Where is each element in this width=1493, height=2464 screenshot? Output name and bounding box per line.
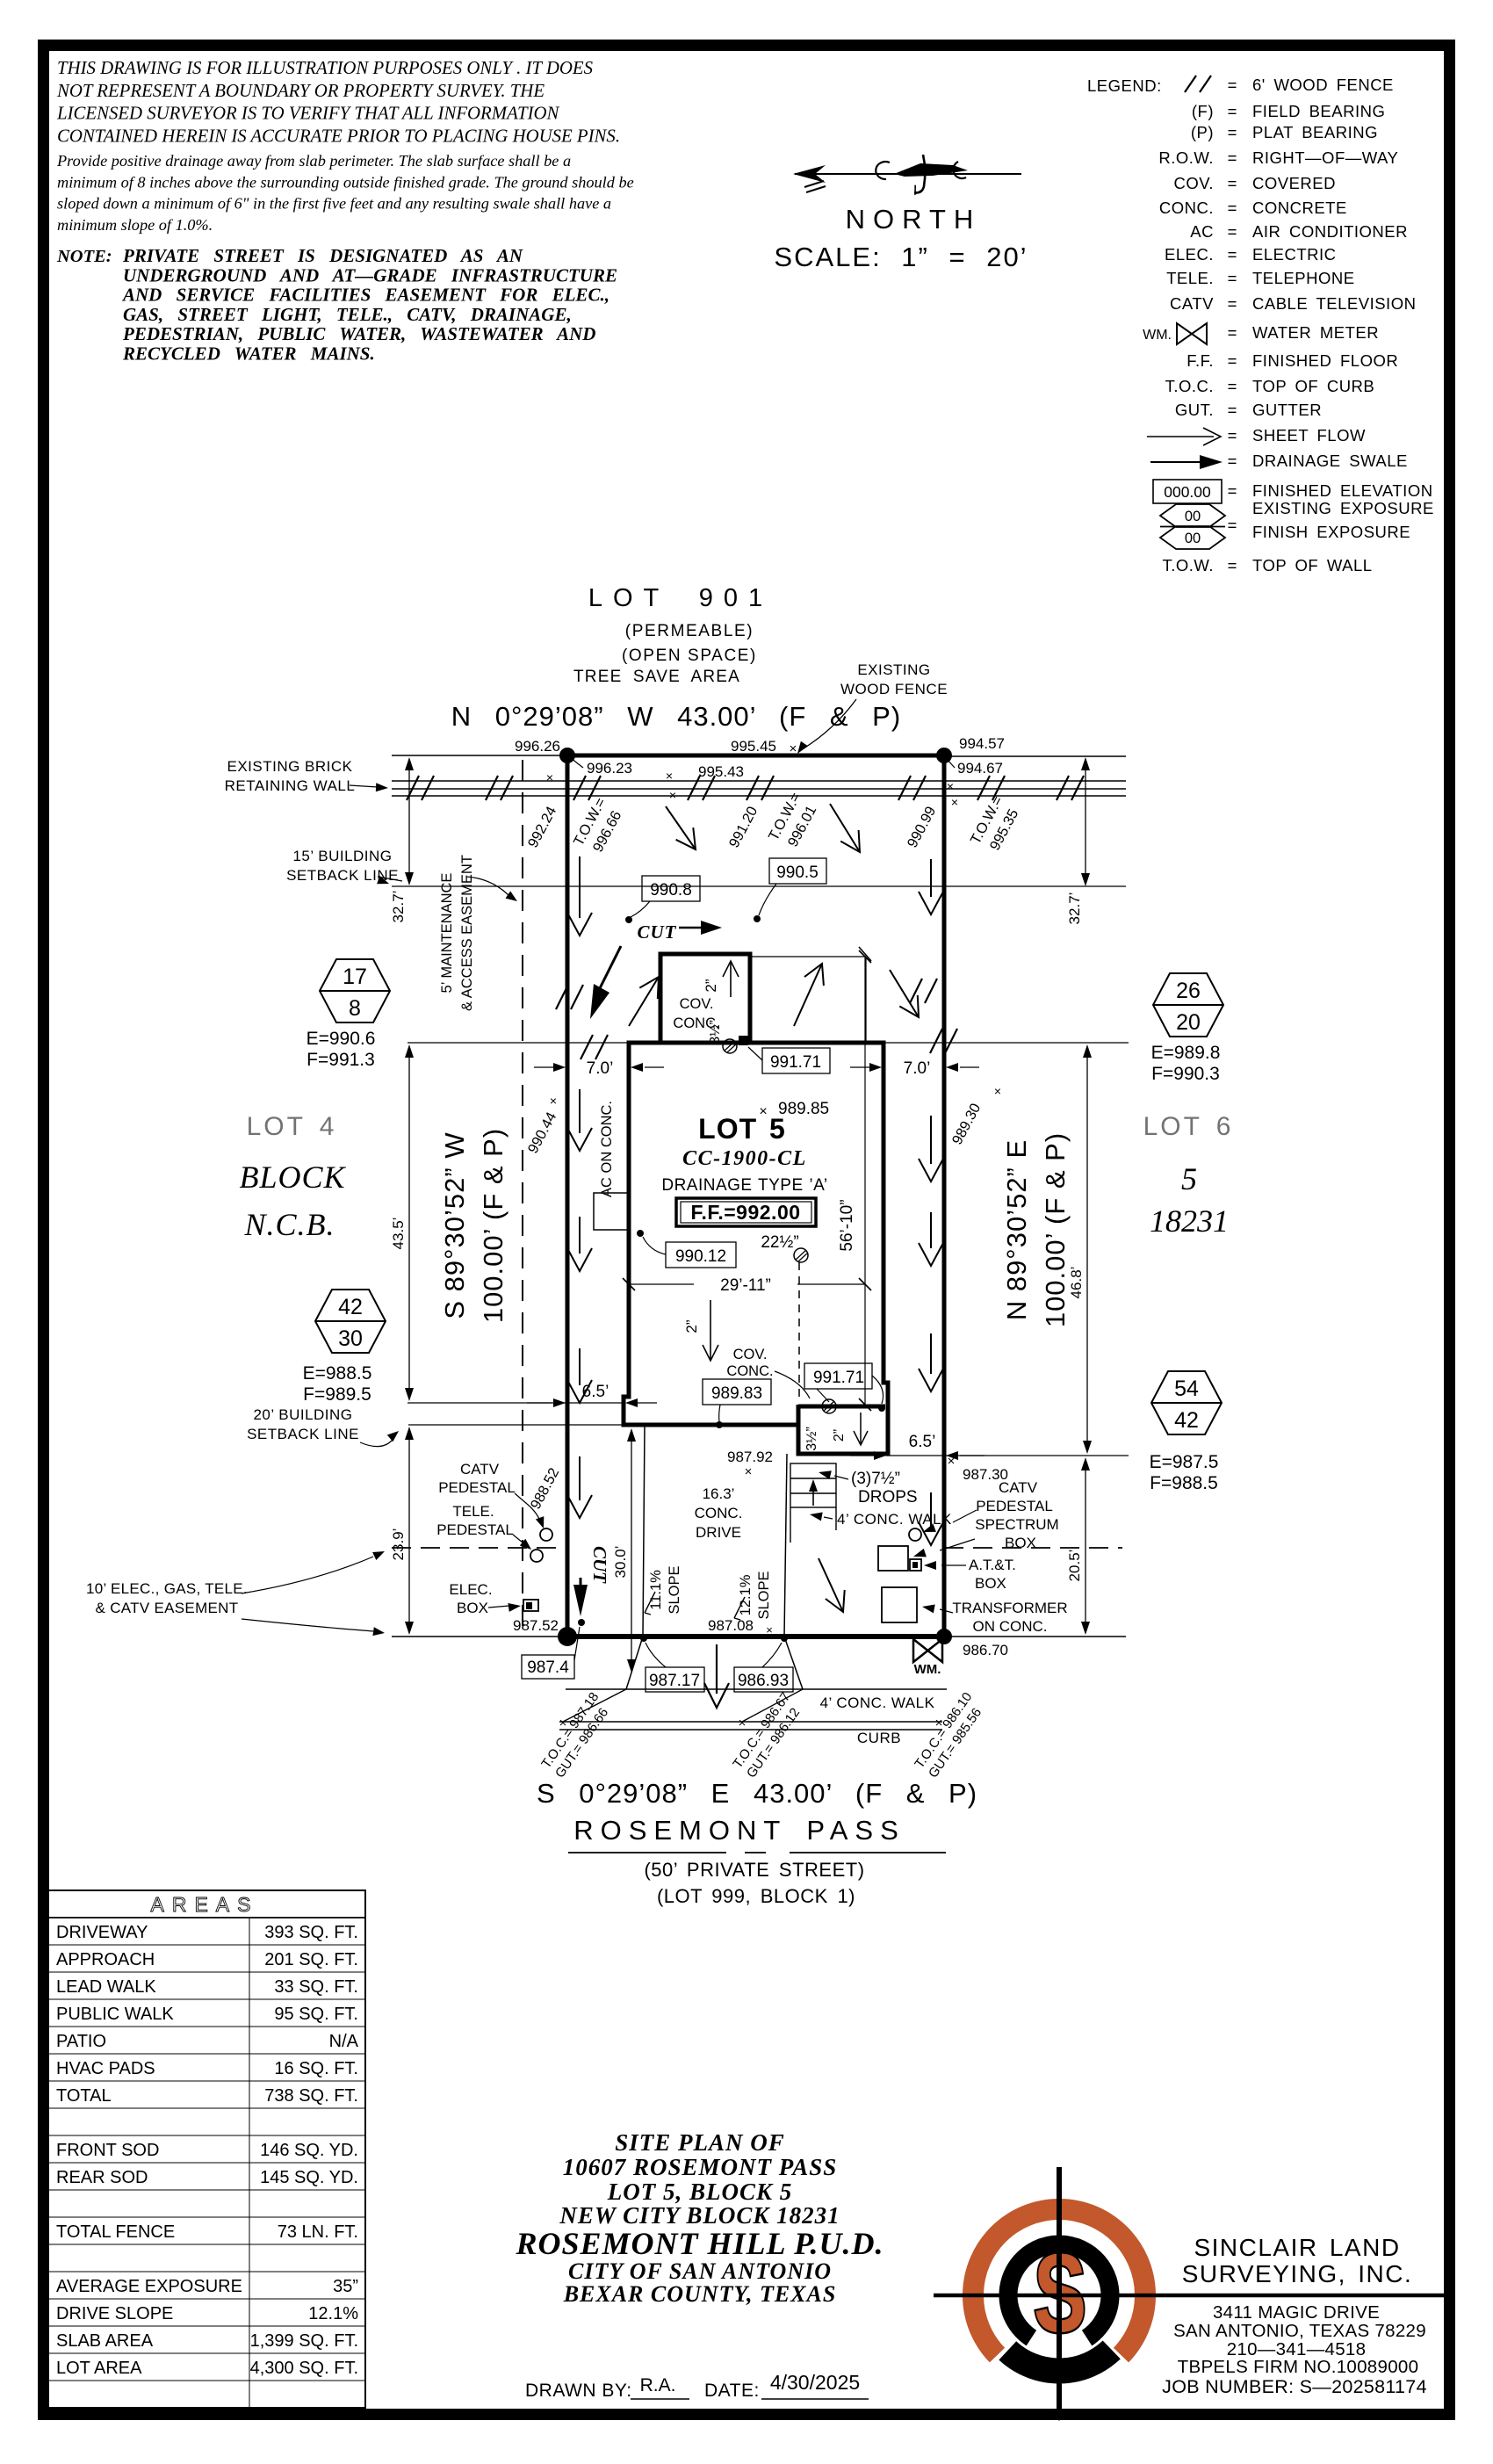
svg-text:E=990.6: E=990.6: [307, 1029, 376, 1049]
svg-text:×: ×: [766, 1623, 773, 1637]
svg-text:DATE:: DATE:: [704, 2381, 760, 2401]
svg-text:10’ ELEC., GAS, TELE.: 10’ ELEC., GAS, TELE.: [86, 1580, 248, 1597]
svg-text:CONCRETE: CONCRETE: [1252, 199, 1347, 217]
svg-text:18231: 18231: [1150, 1203, 1229, 1239]
svg-text:F=988.5: F=988.5: [1150, 1473, 1218, 1493]
svg-text:LOT 6: LOT 6: [1143, 1112, 1234, 1141]
svg-text:00: 00: [1185, 531, 1201, 546]
svg-text:4’ CONC. WALK: 4’ CONC. WALK: [820, 1694, 935, 1711]
svg-text:×: ×: [994, 1084, 1001, 1098]
svg-text:TRANSFORMER: TRANSFORMER: [952, 1600, 1067, 1616]
svg-text:PEDESTRIAN, PUBLIC WATER, W: PEDESTRIAN, PUBLIC WATER, WASTEWATER AND: [122, 323, 595, 344]
svg-text:TELEPHONE: TELEPHONE: [1252, 269, 1355, 287]
svg-text:990.5: 990.5: [776, 863, 819, 882]
svg-text:R.A.: R.A.: [640, 2375, 676, 2395]
svg-text:LEAD WALK: LEAD WALK: [56, 1977, 156, 1997]
svg-text:×: ×: [550, 1094, 557, 1108]
svg-text:SITE PLAN OF: SITE PLAN OF: [615, 2129, 785, 2156]
svg-text:23.9’: 23.9’: [390, 1528, 407, 1561]
svg-text:11.1%: 11.1%: [648, 1570, 664, 1610]
svg-text:DRIVE SLOPE: DRIVE SLOPE: [56, 2304, 173, 2323]
svg-text:ON CONC.: ON CONC.: [973, 1618, 1048, 1635]
svg-text:22½”: 22½”: [761, 1233, 798, 1252]
svg-text:FINISH EXPOSURE: FINISH EXPOSURE: [1252, 523, 1410, 541]
svg-text:NOT REPRESENT A BOUNDARY OR PR: NOT REPRESENT A BOUNDARY OR PROPERTY SUR…: [56, 81, 545, 101]
svg-text:994.57: 994.57: [959, 735, 1005, 752]
svg-text:×: ×: [745, 1464, 753, 1479]
svg-text:=: =: [1228, 222, 1237, 241]
svg-text:CUT: CUT: [638, 921, 677, 943]
svg-text:987.17: 987.17: [649, 1672, 700, 1690]
svg-text:BEXAR COUNTY, TEXAS: BEXAR COUNTY, TEXAS: [563, 2281, 837, 2307]
svg-text:×: ×: [669, 788, 676, 802]
svg-text:WM.: WM.: [1143, 328, 1172, 343]
svg-text:LOT AREA: LOT AREA: [56, 2359, 142, 2378]
svg-text:CATV: CATV: [999, 1479, 1038, 1496]
svg-text:=: =: [1228, 148, 1237, 167]
svg-text:00: 00: [1185, 509, 1201, 524]
svg-text:TELE.: TELE.: [452, 1503, 494, 1520]
svg-text:DRAWN BY:: DRAWN BY:: [525, 2381, 632, 2401]
svg-text:SLOPE: SLOPE: [667, 1565, 682, 1614]
svg-text:ELEC.: ELEC.: [449, 1581, 492, 1598]
svg-text:NEW CITY BLOCK 18231: NEW CITY BLOCK 18231: [559, 2202, 840, 2229]
svg-text:32.7’: 32.7’: [390, 891, 407, 923]
svg-text:LICENSED SURVEYOR IS TO VERIFY: LICENSED SURVEYOR IS TO VERIFY THAT ALL …: [56, 104, 560, 124]
svg-text:COVERED: COVERED: [1252, 174, 1336, 192]
svg-text:=: =: [1228, 199, 1237, 217]
svg-text:UNDERGROUND AND AT—GRADE IN: UNDERGROUND AND AT—GRADE INFRASTRUCTURE: [123, 264, 617, 285]
svg-text:×: ×: [666, 769, 673, 783]
svg-text:987.08: 987.08: [708, 1617, 754, 1634]
svg-text:20’ BUILDING: 20’ BUILDING: [253, 1406, 352, 1423]
svg-text:393 SQ. FT.: 393 SQ. FT.: [264, 1923, 358, 1942]
svg-text:LOT 901: LOT 901: [588, 584, 773, 612]
svg-text:987.92: 987.92: [727, 1449, 773, 1465]
svg-text:TOTAL FENCE: TOTAL FENCE: [56, 2222, 175, 2242]
svg-text:×: ×: [759, 1104, 767, 1119]
svg-text:PUBLIC WALK: PUBLIC WALK: [56, 2005, 174, 2024]
svg-text:CATV: CATV: [460, 1461, 500, 1478]
svg-text:LOT 5, BLOCK 5: LOT 5, BLOCK 5: [607, 2179, 793, 2205]
svg-text:30: 30: [338, 1326, 363, 1351]
svg-text:SPECTRUM: SPECTRUM: [975, 1516, 1058, 1533]
svg-text:990.12: 990.12: [675, 1247, 726, 1266]
svg-text:=: =: [1228, 174, 1237, 192]
svg-text:BOX: BOX: [457, 1600, 488, 1616]
svg-text:DROPS: DROPS: [858, 1488, 918, 1507]
svg-text:F=989.5: F=989.5: [303, 1384, 371, 1405]
svg-text:GUT.: GUT.: [1175, 401, 1214, 419]
svg-text:LEGEND:: LEGEND:: [1087, 76, 1162, 95]
svg-text:LOT 5: LOT 5: [698, 1113, 786, 1145]
svg-text:995.45: 995.45: [731, 738, 776, 755]
svg-text:73 LN. FT.: 73 LN. FT.: [278, 2222, 358, 2242]
svg-text:43.5’: 43.5’: [390, 1218, 407, 1250]
svg-text:TELE.: TELE.: [1166, 269, 1214, 287]
svg-text:E=987.5: E=987.5: [1150, 1452, 1219, 1472]
svg-text:(50’ PRIVATE STREET): (50’ PRIVATE STREET): [644, 1859, 864, 1881]
svg-text:54: 54: [1174, 1377, 1199, 1401]
svg-text:2”: 2”: [683, 1319, 700, 1333]
svg-text:=: =: [1228, 269, 1237, 287]
svg-text:PEDESTAL: PEDESTAL: [438, 1479, 516, 1496]
svg-text:EXISTING EXPOSURE: EXISTING EXPOSURE: [1252, 499, 1434, 517]
svg-text:CATV: CATV: [1170, 294, 1214, 313]
svg-text:minimum slope of 1.0%.: minimum slope of 1.0%.: [57, 216, 213, 234]
svg-text:AC ON CONC.: AC ON CONC.: [599, 1101, 615, 1197]
svg-text:20.5’: 20.5’: [1066, 1550, 1083, 1582]
svg-text:CC-1900-CL: CC-1900-CL: [682, 1147, 807, 1170]
svg-text:PLAT BEARING: PLAT BEARING: [1252, 123, 1378, 141]
svg-text:F=990.3: F=990.3: [1151, 1064, 1220, 1084]
svg-text:CABLE TELEVISION: CABLE TELEVISION: [1252, 294, 1416, 313]
svg-text:×: ×: [546, 770, 553, 784]
svg-text:ELECTRIC: ELECTRIC: [1252, 245, 1337, 264]
svg-text:35”: 35”: [333, 2277, 358, 2296]
svg-text:991.71: 991.71: [770, 1053, 821, 1072]
svg-text:GUTTER: GUTTER: [1252, 401, 1322, 419]
svg-text:100.00’ (F & P): 100.00’ (F & P): [1040, 1132, 1071, 1327]
svg-text:SLOPE: SLOPE: [756, 1571, 772, 1619]
svg-text:FIELD BEARING: FIELD BEARING: [1252, 102, 1385, 120]
svg-text:CURB: CURB: [857, 1730, 901, 1746]
svg-text:10607 ROSEMONT PASS: 10607 ROSEMONT PASS: [563, 2154, 838, 2180]
svg-text:2”: 2”: [832, 1429, 847, 1442]
svg-text:N.C.B.: N.C.B.: [243, 1207, 335, 1242]
svg-text:=: =: [1228, 102, 1237, 120]
svg-text:42: 42: [338, 1295, 363, 1319]
svg-text:7.0’: 7.0’: [587, 1059, 614, 1078]
svg-text:TOP OF CURB: TOP OF CURB: [1252, 377, 1374, 395]
svg-text:=: =: [1228, 516, 1237, 534]
svg-text:=: =: [1228, 452, 1237, 470]
svg-text:6.5’: 6.5’: [909, 1433, 936, 1451]
svg-text:RETAINING WALL: RETAINING WALL: [225, 777, 356, 794]
svg-text:12.1%: 12.1%: [738, 1574, 754, 1615]
svg-text:PATIO: PATIO: [56, 2032, 106, 2051]
svg-text:JOB NUMBER: S—202581174: JOB NUMBER: S—202581174: [1162, 2376, 1427, 2397]
svg-text:42: 42: [1174, 1408, 1199, 1433]
svg-text:=: =: [1228, 481, 1237, 500]
svg-text:EXISTING: EXISTING: [857, 661, 930, 678]
svg-text:=: =: [1228, 351, 1237, 370]
svg-text:3½”: 3½”: [804, 1427, 819, 1451]
svg-text:T.O.C.: T.O.C.: [1165, 377, 1214, 395]
svg-text:95 SQ. FT.: 95 SQ. FT.: [274, 2005, 358, 2024]
svg-text:33 SQ. FT.: 33 SQ. FT.: [274, 1977, 358, 1997]
svg-text:30.0’: 30.0’: [612, 1546, 629, 1579]
svg-text:=: =: [1228, 323, 1237, 342]
svg-text:5’ MAINTENANCE: 5’ MAINTENANCE: [439, 873, 455, 994]
svg-text:AIR CONDITIONER: AIR CONDITIONER: [1252, 222, 1408, 241]
svg-text:HVAC PADS: HVAC PADS: [56, 2059, 155, 2078]
svg-text:COV.: COV.: [1173, 174, 1214, 192]
svg-text:(3)7½”: (3)7½”: [851, 1470, 900, 1488]
svg-text:5: 5: [1181, 1161, 1197, 1196]
svg-text:145 SQ. YD.: 145 SQ. YD.: [260, 2168, 358, 2187]
svg-text:×: ×: [739, 1716, 746, 1731]
svg-text:F=991.3: F=991.3: [307, 1050, 375, 1070]
svg-text:AREAS: AREAS: [151, 1893, 259, 1916]
svg-text:991.71: 991.71: [813, 1369, 864, 1387]
svg-text:FRONT SOD: FRONT SOD: [56, 2141, 159, 2160]
svg-text:8: 8: [349, 996, 361, 1021]
svg-text:=: =: [1228, 76, 1237, 94]
svg-text:201 SQ. FT.: 201 SQ. FT.: [264, 1950, 358, 1969]
svg-text:000.00: 000.00: [1164, 483, 1211, 501]
svg-text:WATER METER: WATER METER: [1252, 323, 1379, 342]
svg-text:BOX: BOX: [975, 1575, 1006, 1592]
svg-text:PRIVATE STREET IS DESIGNATE: PRIVATE STREET IS DESIGNATED AS AN: [122, 245, 523, 266]
svg-text:989.83: 989.83: [711, 1384, 762, 1403]
svg-text:15’ BUILDING: 15’ BUILDING: [292, 848, 392, 864]
svg-text:Provide positive drainage away: Provide positive drainage away from slab…: [56, 152, 571, 170]
svg-text:CUT: CUT: [589, 1546, 610, 1584]
svg-text:PEDESTAL: PEDESTAL: [976, 1498, 1053, 1514]
svg-text:7.0’: 7.0’: [904, 1059, 931, 1078]
svg-text:PEDESTAL: PEDESTAL: [436, 1521, 514, 1538]
svg-text:56’-10”: 56’-10”: [838, 1199, 856, 1251]
svg-text:(P): (P): [1191, 123, 1214, 141]
svg-text:CITY OF SAN ANTONIO: CITY OF SAN ANTONIO: [568, 2258, 832, 2284]
svg-text:=: =: [1228, 123, 1237, 141]
svg-text:F.F.: F.F.: [1186, 351, 1214, 370]
svg-text:TBPELS FIRM NO.10089000: TBPELS FIRM NO.10089000: [1178, 2357, 1419, 2377]
svg-text:=: =: [1228, 401, 1237, 419]
svg-text:=: =: [1228, 556, 1237, 574]
svg-text:SAN ANTONIO, TEXAS 78229: SAN ANTONIO, TEXAS 78229: [1173, 2321, 1426, 2341]
svg-text:RIGHT—OF—WAY: RIGHT—OF—WAY: [1252, 148, 1398, 167]
svg-text:6' WOOD FENCE: 6' WOOD FENCE: [1252, 76, 1394, 94]
svg-text:N 89°30’52” E: N 89°30’52” E: [1001, 1139, 1032, 1320]
svg-text:(OPEN SPACE): (OPEN SPACE): [622, 647, 757, 665]
svg-text:29’-11”: 29’-11”: [720, 1276, 771, 1295]
svg-text:=: =: [1228, 294, 1237, 313]
svg-text:DRAINAGE TYPE ’A’: DRAINAGE TYPE ’A’: [661, 1176, 827, 1195]
svg-text:minimum of 8 inches above the: minimum of 8 inches above the surroundin…: [57, 173, 634, 191]
svg-text:WM.: WM.: [914, 1662, 941, 1677]
svg-text:AVERAGE EXPOSURE: AVERAGE EXPOSURE: [56, 2277, 242, 2296]
svg-text:F.F.=992.00: F.F.=992.00: [690, 1201, 800, 1224]
svg-text:TOTAL: TOTAL: [56, 2086, 112, 2106]
svg-text:987.4: 987.4: [527, 1658, 569, 1677]
svg-text:BLOCK: BLOCK: [239, 1160, 346, 1195]
svg-text:COV.: COV.: [733, 1347, 768, 1362]
svg-text:WOOD FENCE: WOOD FENCE: [840, 681, 948, 697]
svg-text:990.8: 990.8: [650, 881, 692, 900]
svg-text:BOX: BOX: [1005, 1535, 1036, 1551]
svg-text:CONC.: CONC.: [726, 1363, 773, 1379]
svg-text:ELEC.: ELEC.: [1165, 245, 1214, 264]
svg-text:sloped down a minimum of 6" in: sloped down a minimum of 6" in the first…: [57, 195, 611, 213]
svg-text:(F): (F): [1192, 102, 1214, 120]
svg-text:17: 17: [343, 965, 367, 989]
svg-text:2”: 2”: [703, 979, 719, 992]
svg-text:TOP OF WALL: TOP OF WALL: [1252, 556, 1373, 574]
svg-text:4’ CONC. WALK: 4’ CONC. WALK: [837, 1511, 952, 1528]
svg-text:16.3’: 16.3’: [703, 1485, 735, 1502]
svg-text:12.1%: 12.1%: [308, 2304, 358, 2323]
svg-text:738 SQ. FT.: 738 SQ. FT.: [264, 2086, 358, 2106]
svg-text:16 SQ. FT.: 16 SQ. FT.: [274, 2059, 358, 2078]
svg-text:N 0°29’08” W 43.00’ (F &: N 0°29’08” W 43.00’ (F & P): [451, 701, 901, 732]
svg-text:& ACCESS EASEMENT: & ACCESS EASEMENT: [459, 855, 475, 1011]
svg-text:E=989.8: E=989.8: [1151, 1043, 1221, 1063]
svg-text:E=988.5: E=988.5: [303, 1363, 372, 1384]
svg-text:N/A: N/A: [329, 2032, 359, 2051]
svg-text:AND SERVICE FACILITIES EASE: AND SERVICE FACILITIES EASEMENT FOR ELEC…: [121, 285, 609, 306]
svg-text:SLAB AREA: SLAB AREA: [56, 2331, 154, 2351]
svg-text:EXISTING BRICK: EXISTING BRICK: [227, 758, 352, 775]
svg-text:=: =: [1228, 426, 1237, 444]
svg-text:NORTH: NORTH: [846, 204, 982, 235]
svg-text:100.00’ (F & P): 100.00’ (F & P): [478, 1128, 508, 1323]
svg-text:FINISHED ELEVATION: FINISHED ELEVATION: [1252, 481, 1433, 500]
svg-text:DRAINAGE SWALE: DRAINAGE SWALE: [1252, 452, 1408, 470]
svg-text:996.23: 996.23: [587, 760, 632, 777]
svg-text:3½”: 3½”: [708, 1020, 723, 1044]
svg-text:THIS DRAWING IS FOR ILLUSTRATI: THIS DRAWING IS FOR ILLUSTRATION PURPOSE…: [57, 58, 594, 78]
svg-text:GAS, STREET LIGHT, TELE.,: GAS, STREET LIGHT, TELE., CATV, DRAINAGE…: [123, 304, 572, 325]
svg-text:4/30/2025: 4/30/2025: [770, 2371, 860, 2394]
svg-text:COV.: COV.: [680, 996, 714, 1012]
svg-text:CONTAINED HEREIN IS ACCURATE P: CONTAINED HEREIN IS ACCURATE PRIOR TO PL…: [57, 126, 620, 146]
svg-text:3411 MAGIC DRIVE: 3411 MAGIC DRIVE: [1213, 2302, 1380, 2323]
svg-text:994.67: 994.67: [957, 760, 1003, 777]
svg-text:AC: AC: [1190, 222, 1214, 241]
svg-text:995.43: 995.43: [698, 763, 744, 780]
svg-text:REAR SOD: REAR SOD: [56, 2168, 148, 2187]
svg-text:26: 26: [1176, 979, 1201, 1003]
svg-text:ROSEMONT PASS: ROSEMONT PASS: [573, 1815, 905, 1846]
svg-text:(LOT 999, BLOCK 1): (LOT 999, BLOCK 1): [657, 1885, 855, 1907]
svg-text:CONC.: CONC.: [695, 1505, 743, 1521]
svg-text:CONC.: CONC.: [1159, 199, 1214, 217]
svg-text:146 SQ. YD.: 146 SQ. YD.: [260, 2141, 358, 2160]
svg-text:996.26: 996.26: [515, 738, 560, 755]
svg-text:989.85: 989.85: [778, 1100, 829, 1118]
svg-text:(PERMEABLE): (PERMEABLE): [625, 622, 754, 640]
svg-text:T.O.W.: T.O.W.: [1163, 556, 1215, 574]
svg-text:4,300 SQ. FT.: 4,300 SQ. FT.: [250, 2359, 358, 2378]
svg-text:DRIVE: DRIVE: [696, 1524, 741, 1541]
svg-text:APPROACH: APPROACH: [56, 1950, 155, 1969]
svg-text:R.O.W.: R.O.W.: [1158, 148, 1214, 167]
svg-text:×: ×: [947, 779, 954, 793]
svg-text:S 89°30’52” W: S 89°30’52” W: [439, 1131, 470, 1319]
svg-text:986.70: 986.70: [963, 1642, 1008, 1658]
svg-text:=: =: [1228, 377, 1237, 395]
svg-text:SINCLAIR LAND: SINCLAIR LAND: [1194, 2234, 1400, 2261]
svg-text:SHEET FLOW: SHEET FLOW: [1252, 426, 1366, 444]
svg-text:ROSEMONT HILL P.U.D.: ROSEMONT HILL P.U.D.: [515, 2226, 884, 2261]
svg-text:SETBACK LINE: SETBACK LINE: [247, 1426, 359, 1442]
svg-text:1,399 SQ. FT.: 1,399 SQ. FT.: [250, 2331, 358, 2351]
svg-text:& CATV EASEMENT: & CATV EASEMENT: [96, 1600, 239, 1616]
svg-text:SURVEYING, INC.: SURVEYING, INC.: [1182, 2260, 1412, 2287]
svg-text:TREE SAVE AREA: TREE SAVE AREA: [573, 668, 740, 686]
svg-text:S 0°29’08” E 43.00’ (F &: S 0°29’08” E 43.00’ (F & P): [537, 1778, 977, 1809]
svg-text:FINISHED FLOOR: FINISHED FLOOR: [1252, 351, 1398, 370]
svg-text:LOT 4: LOT 4: [247, 1112, 337, 1141]
svg-text:=: =: [1228, 245, 1237, 264]
svg-text:32.7’: 32.7’: [1066, 892, 1083, 925]
svg-text:×: ×: [790, 741, 797, 756]
svg-text:A.T.&T.: A.T.&T.: [969, 1557, 1016, 1573]
svg-text:×: ×: [951, 795, 958, 809]
svg-text:987.52: 987.52: [513, 1617, 559, 1634]
svg-text:986.93: 986.93: [738, 1672, 789, 1690]
svg-text:RECYCLED WATER MAINS.: RECYCLED WATER MAINS.: [122, 343, 375, 365]
svg-text:SCALE: 1” = 20’: SCALE: 1” = 20’: [774, 242, 1028, 272]
svg-text:DRIVEWAY: DRIVEWAY: [56, 1923, 148, 1942]
svg-text:NOTE:: NOTE:: [56, 247, 112, 266]
svg-text:20: 20: [1176, 1010, 1201, 1035]
